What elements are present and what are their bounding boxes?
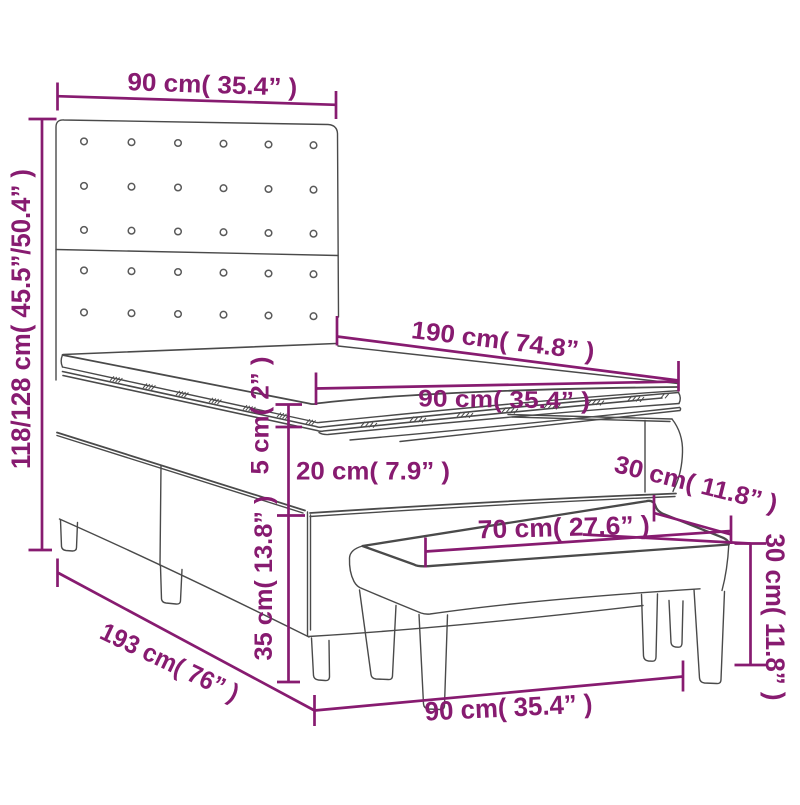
svg-text:90 cm( 35.4” ): 90 cm( 35.4” ) <box>127 68 298 102</box>
svg-text:90 cm( 35.4” ): 90 cm( 35.4” ) <box>418 385 590 414</box>
svg-text:5 cm( 2” ): 5 cm( 2” ) <box>247 357 275 475</box>
svg-text:70 cm( 27.6” ): 70 cm( 27.6” ) <box>477 510 650 545</box>
svg-text:20 cm( 7.9” ): 20 cm( 7.9” ) <box>296 458 450 486</box>
svg-text:30 cm( 11.8” ): 30 cm( 11.8” ) <box>760 534 790 701</box>
svg-text:118/128 cm( 45.5”/50.4” ): 118/128 cm( 45.5”/50.4” ) <box>6 169 36 469</box>
svg-text:35 cm( 13.8” ): 35 cm( 13.8” ) <box>250 496 278 661</box>
